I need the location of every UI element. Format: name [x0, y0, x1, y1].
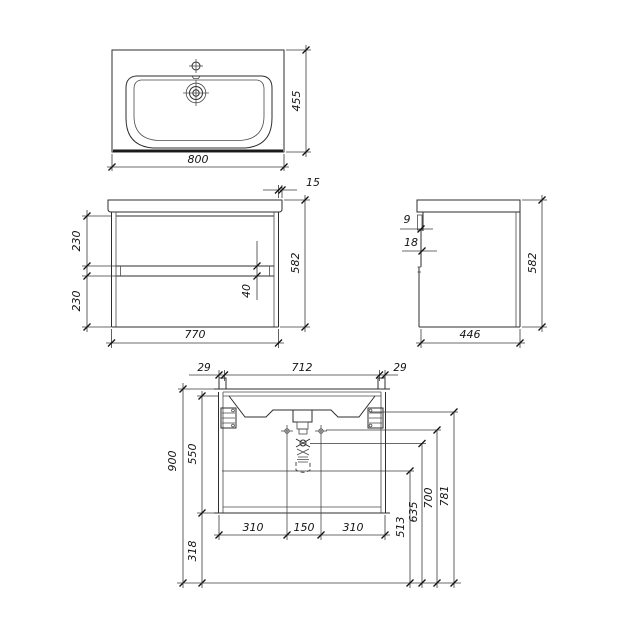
dim-label-310-right: 310 [343, 521, 364, 534]
dim-front-step: 18 [402, 236, 437, 255]
basin-underside-profile [229, 396, 375, 417]
technical-drawing-vanity-unit: 455 800 15 [0, 0, 642, 642]
dim-side-depth: 446 [416, 328, 525, 348]
dim-label-781: 781 [438, 486, 451, 507]
drain-housing [293, 410, 312, 422]
dim-label-29-right: 29 [393, 362, 407, 374]
basin-outline [112, 50, 284, 152]
dim-label-15: 15 [306, 176, 320, 189]
cabinet-front-view: 15 230 230 40 582 [70, 176, 320, 348]
siphon-assembly [296, 429, 310, 472]
dim-label-582-front: 582 [289, 253, 302, 274]
dim-label-40: 40 [240, 284, 253, 298]
dim-label-900: 900 [166, 451, 179, 472]
dim-label-635: 635 [407, 502, 420, 523]
water-supply-left-icon [281, 425, 293, 437]
dim-hanger-drop-and-clearance: 550 318 [186, 391, 218, 588]
drawer-front-profile [418, 215, 423, 230]
dim-label-310-left: 310 [243, 521, 264, 534]
faucet-hole-icon [189, 59, 203, 73]
countertop-front [108, 200, 282, 212]
dim-front-height: 582 [280, 195, 310, 332]
dim-label-700: 700 [422, 488, 435, 509]
dim-front-lip: 9 [400, 213, 433, 233]
dim-drawers: 230 230 [70, 210, 116, 332]
dim-label-455: 455 [290, 91, 303, 112]
installation-view: 900 550 318 29 712 29 [166, 361, 461, 588]
dim-label-318: 318 [186, 541, 199, 562]
dim-label-150: 150 [294, 521, 315, 534]
dim-label-770: 770 [185, 328, 206, 341]
dim-drawer-gap: 40 [240, 241, 261, 300]
dim-label-446: 446 [460, 328, 481, 341]
dim-basin-depth: 455 [286, 45, 311, 157]
basin-top-view: 455 800 [107, 45, 311, 171]
dim-label-712: 712 [292, 361, 313, 374]
dim-basin-width: 800 [107, 153, 289, 171]
dim-label-230-upper: 230 [70, 231, 83, 252]
dim-label-29-left: 29 [197, 362, 211, 374]
dim-label-18: 18 [404, 236, 418, 249]
basin-bowl-inner [134, 80, 264, 141]
dim-supply-spacing: 310 150 310 [214, 515, 390, 540]
water-supply-right-icon [315, 425, 327, 437]
hanger-tab-left [219, 378, 226, 389]
dim-label-550: 550 [186, 444, 199, 465]
hanger-tab-right [378, 378, 385, 389]
dim-label-230-lower: 230 [70, 291, 83, 312]
drawing-svg: 455 800 15 [0, 0, 642, 642]
drain-icon [183, 80, 209, 106]
dim-front-width: 770 [106, 328, 284, 348]
dim-label-582-side: 582 [526, 253, 539, 274]
dim-side-height: 582 [522, 195, 547, 332]
dim-label-513: 513 [394, 517, 407, 538]
dim-overhang: 15 [263, 176, 320, 198]
cabinet-side-view: 9 18 582 446 [400, 195, 547, 348]
dim-label-800: 800 [188, 153, 209, 166]
dim-hanger-span: 29 712 29 [189, 361, 407, 381]
dim-label-9: 9 [404, 213, 411, 226]
countertop-side [417, 200, 520, 212]
